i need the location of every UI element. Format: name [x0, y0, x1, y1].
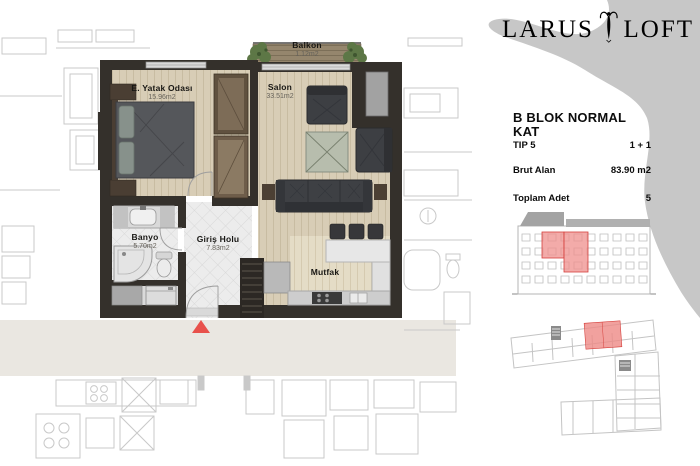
info-value: 5: [646, 193, 651, 204]
brochure-page: Balkon 1.12m2 E. Yatak Odası 15.96m2 Sal…: [0, 0, 700, 466]
floor-plan: [0, 0, 480, 466]
unit-info-title: B BLOK NORMAL KAT: [513, 111, 651, 139]
info-value: 1 + 1: [630, 140, 651, 151]
info-row-brut-alan: Brut Alan 83.90 m2: [513, 165, 651, 176]
building-elevation-diagram: [510, 206, 658, 301]
brand-logo: LARUS LOFT: [502, 6, 694, 52]
hall-closet: [240, 258, 264, 318]
highlighted-floor-units: [564, 232, 588, 272]
brand-word-right: LOFT: [624, 17, 695, 42]
info-label: TIP 5: [513, 140, 536, 151]
bar-stool: [330, 224, 345, 239]
info-label: Brut Alan: [513, 165, 555, 176]
info-label: Toplam Adet: [513, 193, 569, 204]
building-corridor: [0, 320, 456, 376]
bar-stool: [368, 224, 383, 239]
info-row-toplam-adet: Toplam Adet 5: [513, 193, 651, 204]
balcony: [247, 42, 367, 64]
nightstand: [110, 180, 136, 196]
info-value: 83.90 m2: [611, 165, 651, 176]
side-table: [262, 184, 275, 200]
toilet-tank: [156, 252, 172, 259]
bar-stool: [349, 224, 364, 239]
entrance-threshold: [183, 308, 218, 316]
stairwell-mark: [619, 360, 631, 371]
site-key-plan: [503, 298, 665, 438]
kitchen-counter: [372, 262, 390, 294]
info-row-tip: TIP 5 1 + 1: [513, 140, 651, 151]
stairwell-mark: [551, 326, 561, 340]
highlighted-floor-units: [542, 232, 564, 258]
toilet: [157, 259, 171, 277]
brand-word-left: LARUS: [502, 17, 594, 42]
pillow: [119, 106, 134, 138]
kitchen-shaft: [264, 262, 290, 293]
larus-figure-icon: [599, 3, 619, 47]
kitchen-island: [326, 240, 390, 262]
highlighted-unit-location: [584, 321, 622, 349]
nightstand: [110, 84, 136, 100]
pillow: [119, 142, 134, 174]
kitchen-sink: [350, 293, 367, 303]
bathroom-sink: [130, 209, 156, 225]
unit-info: B BLOK NORMAL KAT TIP 5 1 + 1 Brut Alan …: [513, 111, 651, 204]
shaft: [366, 72, 388, 116]
side-table: [374, 184, 387, 200]
